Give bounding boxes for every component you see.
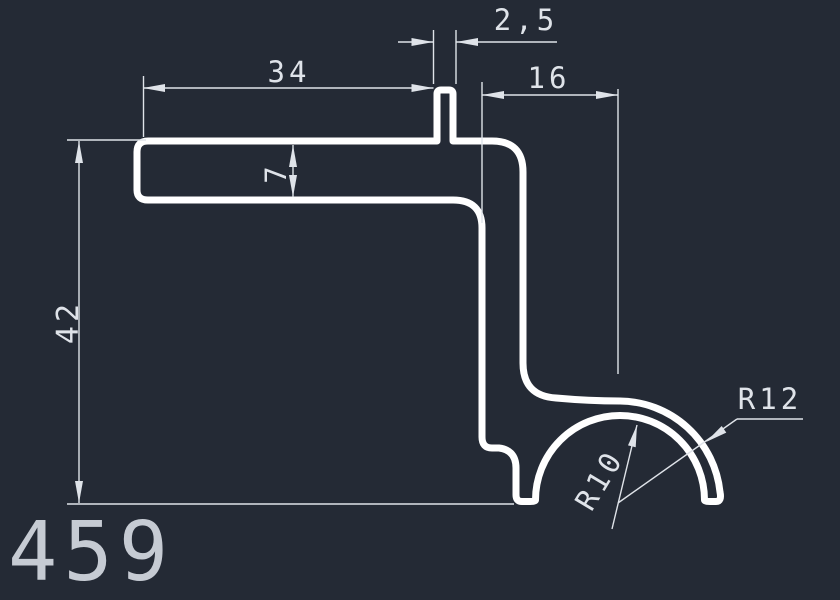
dimension-value[interactable]: 7 — [259, 162, 293, 183]
cad-canvas[interactable]: 34 2,5 16 7 — [0, 0, 840, 600]
drawing-viewport[interactable]: 34 2,5 16 7 — [0, 0, 840, 600]
dimension-value[interactable]: R12 — [738, 382, 802, 416]
dimension-value[interactable]: 34 — [268, 55, 311, 89]
dimension-value[interactable]: 16 — [528, 61, 571, 95]
part-number-label[interactable]: 459 — [8, 505, 174, 600]
dimension-value[interactable]: 42 — [51, 300, 86, 344]
dimension-value[interactable]: 2,5 — [494, 3, 558, 37]
